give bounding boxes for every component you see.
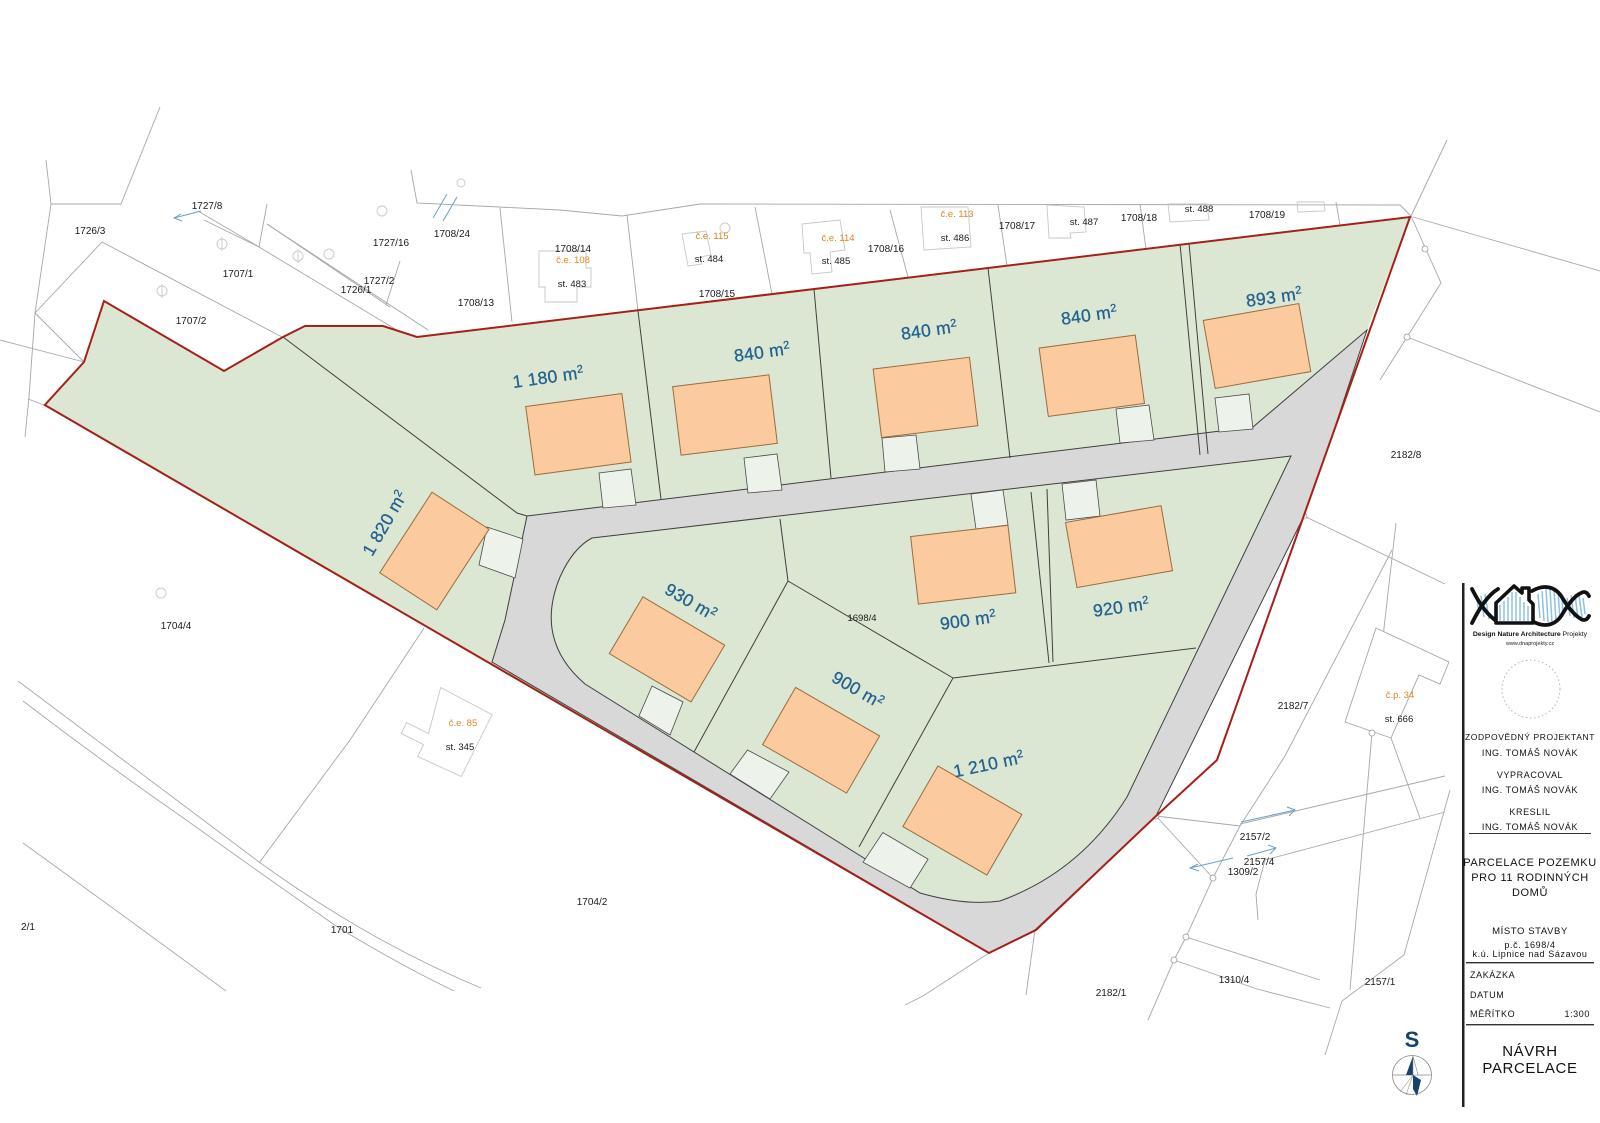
- svg-text:2182/7: 2182/7: [1278, 701, 1309, 712]
- svg-text:1726/1: 1726/1: [341, 285, 372, 296]
- svg-text:č.e. 114: č.e. 114: [821, 233, 854, 244]
- svg-text:č.e. 115: č.e. 115: [695, 231, 728, 242]
- svg-text:1708/16: 1708/16: [868, 244, 905, 255]
- svg-text:1707/2: 1707/2: [176, 316, 207, 327]
- svg-text:st. 345: st. 345: [446, 742, 475, 753]
- svg-text:st. 485: st. 485: [822, 256, 851, 267]
- svg-text:ZAKÁZKA: ZAKÁZKA: [1470, 970, 1515, 980]
- svg-text:1708/19: 1708/19: [1249, 210, 1286, 221]
- svg-text:ING. TOMÁŠ NOVÁK: ING. TOMÁŠ NOVÁK: [1482, 785, 1578, 795]
- svg-text:1309/2: 1309/2: [1228, 867, 1259, 878]
- svg-text:1698/4: 1698/4: [847, 613, 876, 624]
- svg-text:1726/3: 1726/3: [75, 226, 106, 237]
- svg-text:PRO 11 RODINNÝCH: PRO 11 RODINNÝCH: [1471, 871, 1589, 884]
- svg-text:st. 486: st. 486: [941, 233, 970, 244]
- svg-text:DATUM: DATUM: [1470, 990, 1504, 1000]
- svg-text:VYPRACOVAL: VYPRACOVAL: [1497, 770, 1563, 780]
- svg-text:1704/4: 1704/4: [161, 621, 192, 632]
- svg-text:www.dnaprojekty.cz: www.dnaprojekty.cz: [1505, 641, 1554, 647]
- svg-text:1310/4: 1310/4: [1219, 975, 1250, 986]
- svg-text:1708/13: 1708/13: [458, 298, 495, 309]
- svg-text:2182/1: 2182/1: [1096, 988, 1127, 999]
- svg-text:MÍSTO STAVBY: MÍSTO STAVBY: [1492, 926, 1568, 937]
- svg-text:2157/2: 2157/2: [1240, 832, 1271, 843]
- svg-text:1704/2: 1704/2: [577, 897, 608, 908]
- svg-text:1708/15: 1708/15: [699, 289, 736, 300]
- svg-text:PARCELACE POZEMKU: PARCELACE POZEMKU: [1463, 857, 1596, 869]
- svg-text:ING. TOMÁŠ NOVÁK: ING. TOMÁŠ NOVÁK: [1482, 822, 1578, 832]
- svg-text:č.e. 85: č.e. 85: [449, 718, 478, 729]
- svg-text:MĚŘÍTKO: MĚŘÍTKO: [1470, 1009, 1515, 1019]
- svg-text:č.p. 34: č.p. 34: [1386, 690, 1415, 701]
- svg-text:2/1: 2/1: [21, 922, 35, 933]
- svg-text:1708/24: 1708/24: [434, 229, 471, 240]
- svg-text:1:300: 1:300: [1564, 1009, 1590, 1019]
- svg-text:st. 488: st. 488: [1185, 204, 1214, 215]
- svg-text:st. 666: st. 666: [1385, 714, 1414, 725]
- svg-text:1727/16: 1727/16: [373, 238, 410, 249]
- svg-text:1701: 1701: [331, 925, 354, 936]
- svg-text:PARCELACE: PARCELACE: [1482, 1060, 1577, 1077]
- svg-text:2182/8: 2182/8: [1391, 450, 1422, 461]
- svg-text:KRESLIL: KRESLIL: [1509, 807, 1550, 817]
- svg-text:1708/18: 1708/18: [1121, 213, 1158, 224]
- svg-text:1708/14: 1708/14: [555, 244, 592, 255]
- svg-text:ING. TOMÁŠ NOVÁK: ING. TOMÁŠ NOVÁK: [1482, 748, 1578, 758]
- svg-text:č.e. 108: č.e. 108: [556, 255, 590, 266]
- svg-text:NÁVRH: NÁVRH: [1502, 1043, 1558, 1060]
- svg-text:st. 484: st. 484: [695, 254, 724, 265]
- svg-text:Design Nature Architecture Pro: Design Nature Architecture Projekty: [1473, 631, 1588, 638]
- svg-text:DOMŮ: DOMŮ: [1512, 886, 1548, 899]
- svg-text:k.ú. Lipnice nad Sázavou: k.ú. Lipnice nad Sázavou: [1473, 949, 1588, 959]
- svg-text:S: S: [1405, 1027, 1420, 1052]
- svg-text:č.e. 113: č.e. 113: [940, 209, 973, 220]
- svg-text:st. 483: st. 483: [558, 279, 587, 290]
- svg-text:1727/8: 1727/8: [192, 201, 223, 212]
- svg-text:1707/1: 1707/1: [223, 269, 254, 280]
- svg-text:st. 487: st. 487: [1070, 217, 1099, 228]
- svg-text:2157/1: 2157/1: [1365, 977, 1396, 988]
- svg-text:ZODPOVĚDNÝ PROJEKTANT: ZODPOVĚDNÝ PROJEKTANT: [1465, 732, 1595, 742]
- svg-text:1708/17: 1708/17: [999, 221, 1036, 232]
